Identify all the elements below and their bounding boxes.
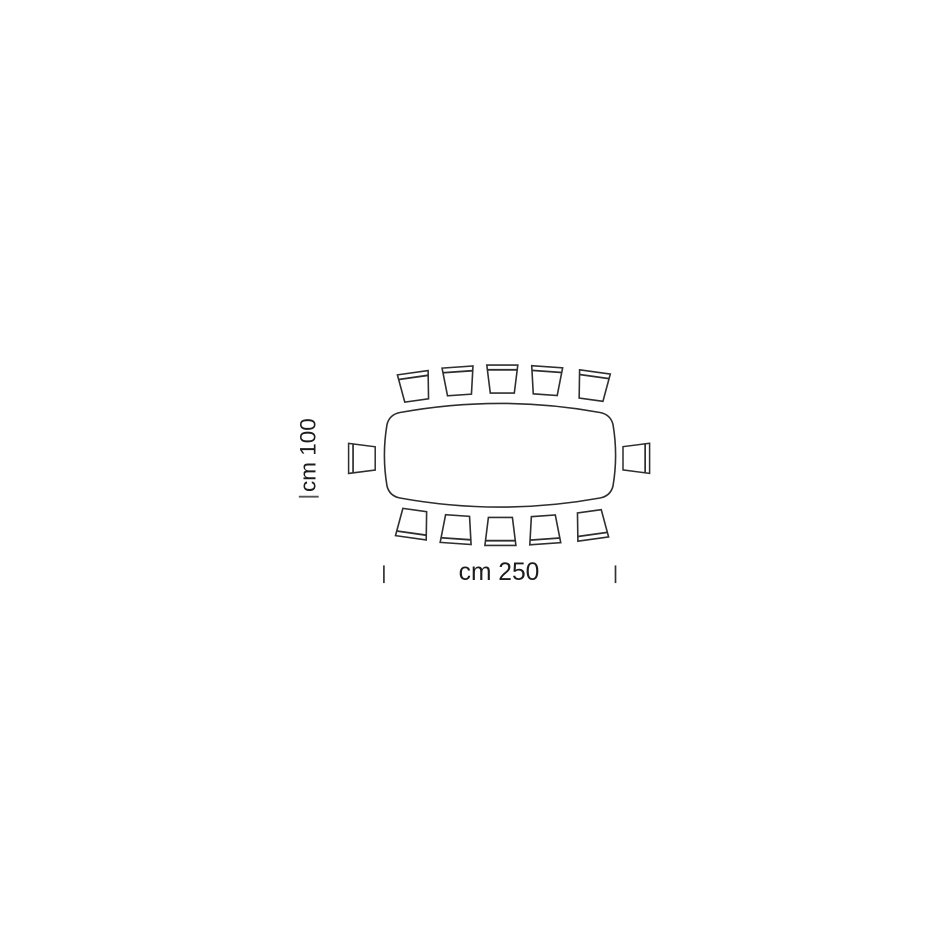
- svg-text:cm 100: cm 100: [296, 418, 321, 492]
- svg-text:cm 250: cm 250: [459, 559, 540, 586]
